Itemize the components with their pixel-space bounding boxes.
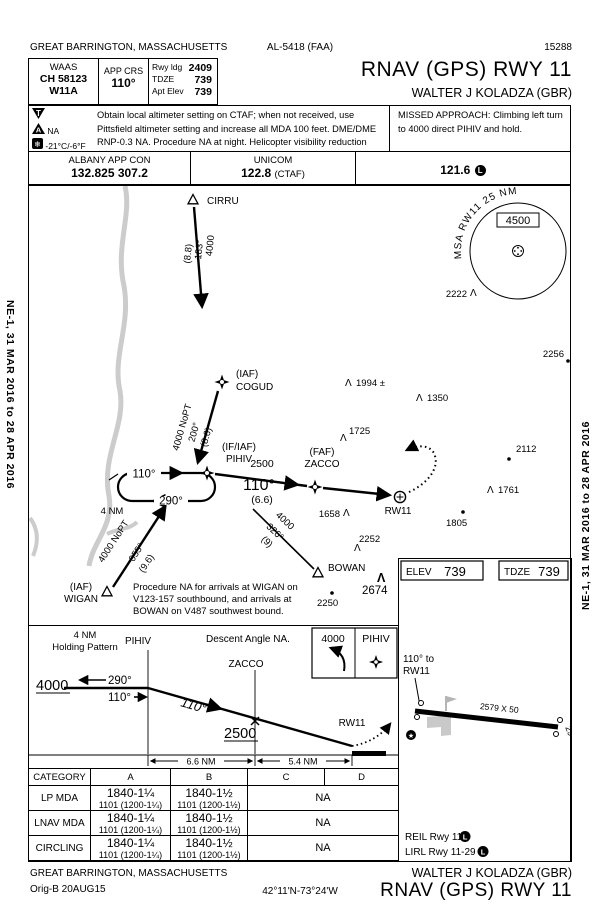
cirru-label: CIRRU (207, 196, 239, 207)
unicom-name: UNICOM (191, 155, 355, 166)
runway-dimensions: 2579 X 50 (480, 701, 520, 715)
obstacle-2674-icon: Λ (377, 571, 386, 585)
minima-sub: 1101 (1200-1¼) (91, 800, 170, 810)
apron-shape (427, 715, 451, 736)
profile-alt-4000: 4000 (36, 678, 68, 694)
rw11-label: RW11 (385, 506, 412, 517)
profile-pihiv-label: PIHIV (125, 636, 151, 647)
minima-sub: 1101 (1200-1¼) (91, 850, 170, 860)
plan-note-line3: BOWAN on V487 southwest bound. (133, 606, 284, 617)
airport-sketch: ELEV 739 TDZE 739 110° to RW11 2579 X 50… (398, 558, 572, 862)
elev-value: 739 (444, 564, 466, 579)
header-al-ref: AL-5418 (FAA) (0, 42, 600, 53)
pihiv-type: (IF/IAF) (222, 442, 256, 453)
obstacle-1725-icon: Λ (340, 433, 347, 444)
row-label: LNAV MDA (29, 811, 91, 836)
minima-sub: 1101 (1200-1¼) (91, 825, 170, 835)
waas-ident: W11A (29, 85, 98, 97)
runway-end-29: 29 (563, 724, 570, 737)
minimums-table: CATEGORY A B C D LP MDA 1840-1¼1101 (120… (28, 768, 399, 861)
cirru-track-dist: (8.8) (182, 243, 195, 264)
obstacle-2252-label: 2252 (359, 534, 380, 545)
svg-text:T: T (36, 109, 41, 118)
hold-inbound-course: 110° (133, 469, 156, 481)
pz-track-alt: 2500 (250, 458, 274, 470)
obstacle-2112-label: 2112 (516, 444, 536, 455)
cold-temp-label: -21°C/-6°F (45, 141, 85, 151)
pihiv-label: PIHIV (226, 454, 252, 465)
profile-zacco-label: ZACCO (229, 659, 264, 670)
wigan-type: (IAF) (70, 582, 92, 593)
pz-track-dist: (6.6) (251, 494, 273, 506)
missed-approach-path (407, 446, 436, 492)
obstacle-2250-dot (330, 591, 334, 595)
msa-altitude: 4500 (506, 215, 530, 227)
apt-elev-label: Apt Elev (152, 86, 184, 98)
rwy-end-loop (558, 718, 563, 723)
zacco-fix-symbol (308, 480, 323, 495)
rwy-end-loop (415, 715, 420, 720)
minima-sub: 1101 (1200-1½) (171, 800, 247, 810)
profile-inbound-course: 110° (108, 692, 131, 704)
tdze-value: 739 (538, 564, 560, 579)
app-crs-label: APP CRS (99, 66, 148, 76)
alternate-na-label: NA (47, 126, 59, 136)
reil-part-time-glyph: L (463, 833, 468, 842)
aux-freq-cell: 121.6 L (355, 152, 570, 184)
apt-elev-value: 739 (194, 86, 212, 98)
obstacle-2222-label: 2222 (446, 289, 467, 300)
rwy-end-loop (419, 701, 424, 706)
row-label: CIRCLING (29, 836, 91, 861)
waas-cell: WAAS CH 58123 W11A (29, 59, 99, 104)
notes-icons: T A NA ❄ -21°C/-6°F (29, 106, 95, 151)
sketch-course-line1: 110° to (403, 654, 434, 665)
obstacle-2256-dot (566, 359, 570, 363)
minimums-header-row: CATEGORY A B C D (29, 769, 399, 786)
missed-approach-box: MISSED APPROACH: Climbing left turn to 4… (389, 106, 570, 151)
windsock-flag (446, 696, 457, 703)
profile-runway-bar (352, 751, 386, 756)
obstacle-1725-label: 1725 (349, 426, 370, 437)
hold-outbound-course: 290° (159, 496, 183, 508)
right-binding-strip: NE-1, 31 MAR 2016 to 28 APR 2016 (580, 340, 592, 610)
svg-text:A: A (36, 126, 42, 135)
lp-mda-row: LP MDA 1840-1¼1101 (1200-1¼) 1840-1½1101… (29, 786, 399, 811)
profile-descent-course: 110° (179, 694, 208, 716)
rw11-map-symbol (394, 491, 405, 502)
obstacle-2674-label: 2674 (362, 585, 388, 597)
obstacle-1761-icon: Λ (487, 485, 494, 496)
profile-descent-arrow (206, 705, 220, 709)
cirru-track-crs: 183° (193, 239, 206, 260)
approach-control-name: ALBANY APP CON (29, 155, 190, 166)
minima-na: NA (248, 786, 399, 811)
unicom-suffix: (CTAF) (274, 169, 304, 180)
approach-control-cell: ALBANY APP CON 132.825 307.2 (29, 152, 190, 184)
cirru-track-alt: 4000 (204, 235, 217, 257)
profile-hold-label1: 4 NM (74, 630, 97, 641)
bowan-fix-symbol (313, 568, 323, 577)
obstacle-1805-dot (461, 510, 465, 514)
unicom-cell: UNICOM 122.8 (CTAF) (190, 152, 355, 184)
tdze-value: 739 (194, 74, 212, 86)
category-header: CATEGORY (29, 769, 91, 786)
rwy-end-loop (554, 732, 559, 737)
wigan-label: WIGAN (64, 594, 98, 605)
profile-rw11-label: RW11 (339, 718, 366, 729)
alternate-minimums-icon: A (32, 123, 45, 134)
obstacle-2222-icon: Λ (470, 288, 477, 299)
footer-procedure-title: RNAV (GPS) RWY 11 (380, 880, 572, 902)
rwy-data-cell: Rwy ldg2409 TDZE739 Apt Elev739 (149, 59, 215, 104)
msa-center-symbol (513, 246, 524, 257)
app-crs-value: 110° (99, 76, 148, 90)
dist-label-1: 6.6 NM (186, 757, 215, 767)
bowan-label: BOWAN (328, 563, 365, 574)
minima-na: NA (248, 836, 399, 861)
dist-label-2: 5.4 NM (288, 757, 317, 767)
waas-channel: CH 58123 (29, 73, 98, 85)
obstacle-1350-icon: Λ (416, 393, 423, 404)
profile-hold-label2: Holding Pattern (52, 642, 117, 653)
cat-b-header: B (171, 769, 248, 786)
alternate-na-row: A NA (32, 123, 95, 138)
obstacle-1761-label: 1761 (498, 485, 519, 496)
lirl-part-time-glyph: L (481, 848, 486, 857)
beacon-star: ★ (408, 732, 414, 740)
river-left (30, 518, 37, 556)
obstacle-1658-label: 1658 (319, 509, 340, 520)
missed-approach-title: MISSED APPROACH: (398, 110, 490, 120)
svg-text:❄: ❄ (34, 140, 41, 149)
hold-leg-length: 4 NM (101, 506, 124, 517)
obstacle-1658-icon: Λ (343, 508, 350, 519)
profile-view: 4 NM Holding Pattern PIHIV Descent Angle… (28, 625, 398, 768)
profile-alt-2500: 2500 (224, 726, 256, 742)
airport-name: WALTER J KOLADZA (GBR) (412, 86, 572, 100)
tdze-label: TDZE (504, 567, 530, 578)
obstacle-1805-label: 1805 (446, 518, 467, 529)
circling-row: CIRCLING 1840-1¼1101 (1200-1¼) 1840-1½11… (29, 836, 399, 861)
obstacle-1994-icon: Λ (345, 378, 352, 389)
part-time-icon: L (475, 165, 486, 176)
ma-inset-fix: PIHIV (362, 633, 389, 645)
reil-label: REIL Rwy 11 (405, 832, 463, 843)
cogud-label: COGUD (236, 382, 273, 393)
footer-airport-name: WALTER J KOLADZA (GBR) (412, 866, 572, 880)
takeoff-minimums-icon: T (32, 108, 95, 123)
plan-note-line2: V123-157 southbound, and arrivals at (133, 594, 292, 605)
notes-band: T A NA ❄ -21°C/-6°F Obtain local altimet… (28, 105, 571, 152)
sketch-course-line2: RW11 (403, 666, 430, 677)
approach-control-freq: 132.825 307.2 (29, 166, 190, 180)
zacco-label: ZACCO (305, 459, 340, 470)
cogud-type: (IAF) (236, 369, 258, 380)
minima-value: 1840-1½ (171, 837, 247, 850)
cold-temp-icon: ❄ (32, 138, 43, 149)
aux-freq: 121.6 (440, 163, 470, 177)
minima-value: 1840-1¼ (91, 787, 170, 800)
minima-value: 1840-1¼ (91, 812, 170, 825)
minima-value: 1840-1½ (171, 812, 247, 825)
minima-value: 1840-1¼ (91, 837, 170, 850)
minimums-section: CATEGORY A B C D LP MDA 1840-1¼1101 (120… (28, 768, 399, 861)
unicom-freq: 122.8 (241, 166, 271, 180)
procedure-data-box: WAAS CH 58123 W11A APP CRS 110° Rwy ldg2… (28, 58, 218, 105)
waas-label: WAAS (29, 62, 98, 73)
obstacle-1994-label: 1994 ± (356, 378, 385, 389)
zacco-type: (FAF) (310, 447, 335, 458)
left-binding-strip: NE-1, 31 MAR 2016 to 28 APR 2016 (4, 300, 16, 570)
rwy-ldg-label: Rwy ldg (152, 62, 182, 74)
elev-label: ELEV (406, 567, 432, 578)
obstacle-2112-dot (507, 457, 511, 461)
wigan-fix-symbol (102, 587, 112, 596)
pz-track-arrow (285, 483, 297, 485)
minima-sub: 1101 (1200-1½) (171, 850, 247, 860)
obstacle-1350-label: 1350 (427, 393, 448, 404)
cat-d-header: D (325, 769, 399, 786)
cat-a-header: A (91, 769, 171, 786)
obstacle-2256-label: 2256 (543, 349, 564, 360)
cat-c-header: C (248, 769, 325, 786)
lnav-mda-row: LNAV MDA 1840-1¼1101 (1200-1¼) 1840-1½11… (29, 811, 399, 836)
minima-na: NA (248, 811, 399, 836)
header-serial: 15288 (544, 42, 572, 53)
profile-descent-note: Descent Angle NA. (206, 634, 290, 645)
hold-tick (109, 474, 118, 480)
minima-sub: 1101 (1200-1½) (171, 825, 247, 835)
ma-inset-altitude: 4000 (321, 633, 345, 645)
tdze-label: TDZE (152, 74, 174, 86)
pz-track-crs: 110° (243, 477, 275, 494)
notes-body: Obtain local altimeter setting on CTAF; … (95, 106, 389, 151)
rwy-ldg-value: 2409 (189, 62, 212, 74)
frequency-band: ALBANY APP CON 132.825 307.2 UNICOM 122.… (28, 151, 571, 185)
app-crs-cell: APP CRS 110° (99, 59, 149, 104)
obstacle-2250-label: 2250 (317, 598, 338, 609)
minima-value: 1840-1½ (171, 787, 247, 800)
profile-outbound-course: 290° (108, 675, 132, 687)
lirl-label: LIRL Rwy 11-29 (405, 847, 476, 858)
obstacle-2252-icon: Λ (354, 543, 361, 554)
cogud-fix-symbol (215, 375, 230, 390)
footer-city: GREAT BARRINGTON, MASSACHUSETTS (30, 868, 227, 879)
procedure-title: RNAV (GPS) RWY 11 (361, 58, 572, 82)
row-label: LP MDA (29, 786, 91, 811)
zr-track-line (323, 488, 389, 495)
plan-note-line1: Procedure NA for arrivals at WIGAN on (133, 582, 298, 593)
cirru-fix-symbol (188, 195, 198, 204)
